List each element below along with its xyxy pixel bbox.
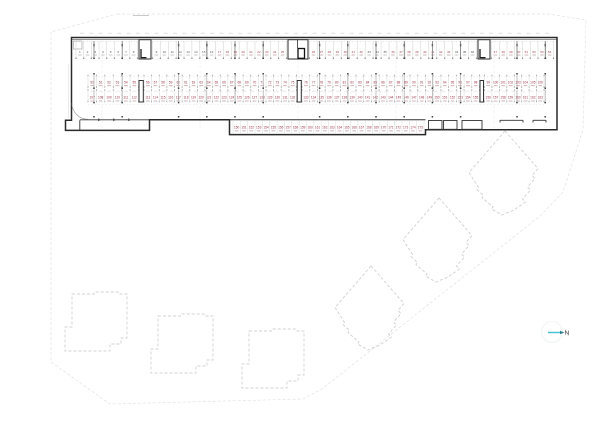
svg-text:168: 168 — [366, 126, 372, 130]
svg-text:17: 17 — [218, 50, 222, 54]
svg-text:48: 48 — [501, 50, 505, 54]
svg-text:9: 9 — [156, 50, 158, 54]
svg-text:76: 76 — [304, 80, 308, 84]
svg-text:50: 50 — [517, 50, 521, 54]
svg-text:18: 18 — [226, 50, 230, 54]
svg-text:145: 145 — [396, 96, 402, 100]
svg-text:25: 25 — [281, 50, 285, 54]
svg-text:98: 98 — [474, 80, 478, 84]
svg-text:149: 149 — [427, 96, 433, 100]
svg-text:167: 167 — [359, 126, 365, 130]
svg-text:89: 89 — [404, 80, 408, 84]
svg-text:44: 44 — [455, 50, 459, 54]
svg-text:5: 5 — [110, 50, 112, 54]
svg-text:105: 105 — [530, 80, 536, 84]
svg-text:54: 54 — [124, 80, 128, 84]
svg-text:82: 82 — [350, 80, 354, 84]
svg-text:51: 51 — [99, 80, 103, 84]
svg-text:39: 39 — [415, 50, 419, 54]
svg-text:110: 110 — [115, 96, 120, 100]
svg-text:42: 42 — [439, 50, 443, 54]
svg-text:162: 162 — [322, 126, 328, 130]
svg-text:163: 163 — [330, 126, 336, 130]
svg-text:22: 22 — [257, 50, 261, 54]
svg-text:64: 64 — [207, 80, 211, 84]
svg-text:73: 73 — [276, 80, 280, 84]
svg-text:27: 27 — [320, 50, 324, 54]
svg-text:154: 154 — [465, 96, 471, 100]
svg-text:47: 47 — [494, 50, 498, 54]
svg-text:127: 127 — [252, 96, 258, 100]
svg-text:170: 170 — [381, 126, 387, 130]
svg-text:94: 94 — [443, 80, 447, 84]
svg-text:8: 8 — [133, 50, 135, 54]
svg-text:90: 90 — [412, 80, 416, 84]
svg-text:142: 142 — [373, 96, 379, 100]
svg-text:15: 15 — [202, 50, 206, 54]
svg-text:43: 43 — [447, 50, 451, 54]
svg-text:169: 169 — [374, 126, 380, 130]
svg-text:95: 95 — [451, 80, 455, 84]
svg-text:61: 61 — [184, 80, 188, 84]
svg-text:156: 156 — [486, 96, 492, 100]
svg-text:65: 65 — [215, 80, 219, 84]
svg-text:109: 109 — [106, 96, 112, 100]
svg-text:161: 161 — [523, 96, 529, 100]
svg-text:91: 91 — [420, 80, 424, 84]
svg-text:35: 35 — [383, 50, 387, 54]
svg-text:45: 45 — [463, 50, 467, 54]
svg-text:83: 83 — [358, 80, 362, 84]
svg-text:157: 157 — [493, 96, 499, 100]
svg-text:52: 52 — [107, 80, 111, 84]
svg-text:1: 1 — [79, 50, 81, 54]
svg-text:10: 10 — [163, 50, 167, 54]
svg-text:147: 147 — [411, 96, 417, 100]
svg-text:152: 152 — [249, 126, 255, 130]
svg-text:101: 101 — [500, 80, 506, 84]
svg-text:58: 58 — [161, 80, 165, 84]
svg-text:111: 111 — [123, 96, 128, 100]
svg-text:130: 130 — [275, 96, 281, 100]
svg-text:59: 59 — [169, 80, 173, 84]
svg-text:88: 88 — [397, 80, 401, 84]
svg-text:134: 134 — [311, 96, 317, 100]
svg-text:156: 156 — [278, 126, 284, 130]
svg-text:106: 106 — [538, 80, 544, 84]
svg-text:125: 125 — [237, 96, 243, 100]
svg-text:166: 166 — [352, 126, 358, 130]
svg-text:63: 63 — [199, 80, 203, 84]
svg-text:92: 92 — [428, 80, 432, 84]
svg-text:77: 77 — [312, 80, 316, 84]
svg-text:159: 159 — [508, 96, 514, 100]
svg-text:118: 118 — [183, 96, 188, 100]
svg-text:137: 137 — [334, 96, 340, 100]
svg-text:49: 49 — [509, 50, 513, 54]
svg-text:100: 100 — [493, 80, 499, 84]
svg-text:56: 56 — [146, 80, 150, 84]
svg-text:52: 52 — [532, 50, 536, 54]
svg-text:2: 2 — [87, 50, 89, 54]
svg-text:19: 19 — [234, 50, 238, 54]
svg-text:158: 158 — [293, 126, 299, 130]
svg-text:31: 31 — [352, 50, 356, 54]
svg-text:41: 41 — [431, 50, 435, 54]
svg-text:150: 150 — [434, 96, 440, 100]
svg-text:159: 159 — [300, 126, 306, 130]
svg-text:67: 67 — [230, 80, 234, 84]
svg-text:55: 55 — [133, 80, 137, 84]
svg-text:131: 131 — [282, 96, 288, 100]
svg-text:151: 151 — [442, 96, 448, 100]
svg-text:163: 163 — [538, 96, 544, 100]
svg-text:13: 13 — [186, 50, 190, 54]
svg-text:124: 124 — [229, 96, 235, 100]
svg-text:40: 40 — [423, 50, 427, 54]
svg-text:151: 151 — [241, 126, 247, 130]
svg-text:161: 161 — [315, 126, 321, 130]
svg-text:38: 38 — [407, 50, 411, 54]
svg-text:164: 164 — [337, 126, 343, 130]
svg-text:158: 158 — [500, 96, 506, 100]
svg-text:99: 99 — [486, 80, 490, 84]
svg-text:141: 141 — [365, 96, 371, 100]
svg-text:155: 155 — [473, 96, 479, 100]
svg-text:70: 70 — [253, 80, 257, 84]
svg-text:162: 162 — [530, 96, 536, 100]
svg-text:140: 140 — [357, 96, 363, 100]
svg-text:85: 85 — [374, 80, 378, 84]
svg-text:75: 75 — [291, 80, 295, 84]
svg-text:3: 3 — [94, 50, 96, 54]
svg-text:62: 62 — [192, 80, 196, 84]
svg-text:153: 153 — [256, 126, 262, 130]
svg-text:84: 84 — [366, 80, 370, 84]
svg-text:30: 30 — [344, 50, 348, 54]
svg-text:57: 57 — [154, 80, 158, 84]
svg-text:160: 160 — [515, 96, 521, 100]
svg-text:119: 119 — [191, 96, 196, 100]
svg-text:87: 87 — [389, 80, 393, 84]
svg-text:20: 20 — [241, 50, 245, 54]
svg-text:16: 16 — [210, 50, 214, 54]
svg-text:174: 174 — [410, 126, 416, 130]
svg-text:175: 175 — [418, 126, 424, 130]
svg-text:123: 123 — [221, 96, 227, 100]
svg-text:86: 86 — [381, 80, 385, 84]
svg-text:23: 23 — [265, 50, 269, 54]
svg-text:72: 72 — [268, 80, 272, 84]
svg-text:160: 160 — [307, 126, 313, 130]
svg-text:79: 79 — [327, 80, 331, 84]
svg-text:108: 108 — [98, 96, 104, 100]
svg-text:139: 139 — [349, 96, 355, 100]
svg-text:46: 46 — [471, 50, 475, 54]
svg-text:97: 97 — [466, 80, 470, 84]
svg-text:155: 155 — [271, 126, 277, 130]
svg-text:28: 28 — [328, 50, 332, 54]
svg-text:36: 36 — [391, 50, 395, 54]
svg-text:104: 104 — [523, 80, 529, 84]
svg-text:136: 136 — [326, 96, 332, 100]
svg-text:173: 173 — [403, 126, 409, 130]
svg-text:114: 114 — [153, 96, 158, 100]
svg-text:102: 102 — [508, 80, 514, 84]
svg-text:157: 157 — [285, 126, 291, 130]
svg-text:143: 143 — [380, 96, 386, 100]
svg-text:50: 50 — [90, 80, 94, 84]
svg-text:7: 7 — [125, 50, 127, 54]
svg-text:126: 126 — [244, 96, 250, 100]
svg-text:116: 116 — [168, 96, 173, 100]
svg-text:171: 171 — [388, 126, 394, 130]
svg-text:14: 14 — [194, 50, 198, 54]
svg-text:11: 11 — [171, 50, 174, 54]
svg-text:138: 138 — [342, 96, 348, 100]
svg-text:53: 53 — [540, 50, 544, 54]
svg-text:74: 74 — [283, 80, 287, 84]
svg-text:150: 150 — [234, 126, 240, 130]
svg-text:80: 80 — [335, 80, 339, 84]
svg-text:53: 53 — [116, 80, 120, 84]
svg-text:68: 68 — [238, 80, 242, 84]
svg-text:144: 144 — [388, 96, 394, 100]
svg-text:4: 4 — [102, 50, 104, 54]
svg-text:32: 32 — [359, 50, 363, 54]
svg-text:93: 93 — [435, 80, 439, 84]
svg-text:154: 154 — [263, 126, 269, 130]
svg-text:165: 165 — [344, 126, 350, 130]
svg-text:6: 6 — [117, 50, 119, 54]
svg-text:26: 26 — [312, 50, 316, 54]
svg-text:69: 69 — [245, 80, 249, 84]
svg-text:115: 115 — [161, 96, 166, 100]
svg-text:24: 24 — [273, 50, 277, 54]
svg-text:51: 51 — [525, 50, 529, 54]
svg-text:37: 37 — [399, 50, 403, 54]
svg-text:122: 122 — [214, 96, 220, 100]
svg-text:120: 120 — [199, 96, 205, 100]
svg-text:172: 172 — [396, 126, 402, 130]
svg-text:128: 128 — [260, 96, 266, 100]
svg-text:133: 133 — [303, 96, 309, 100]
svg-text:71: 71 — [260, 80, 264, 84]
svg-text:29: 29 — [336, 50, 340, 54]
svg-text:113: 113 — [145, 96, 150, 100]
svg-text:78: 78 — [320, 80, 324, 84]
svg-text:132: 132 — [290, 96, 296, 100]
svg-text:66: 66 — [222, 80, 226, 84]
svg-text:33: 33 — [367, 50, 371, 54]
svg-text:152: 152 — [450, 96, 456, 100]
svg-text:112: 112 — [132, 96, 137, 100]
svg-text:81: 81 — [343, 80, 347, 84]
svg-text:21: 21 — [249, 50, 253, 54]
svg-text:129: 129 — [267, 96, 273, 100]
svg-text:148: 148 — [419, 96, 425, 100]
svg-text:103: 103 — [515, 80, 521, 84]
svg-text:54: 54 — [548, 50, 552, 54]
